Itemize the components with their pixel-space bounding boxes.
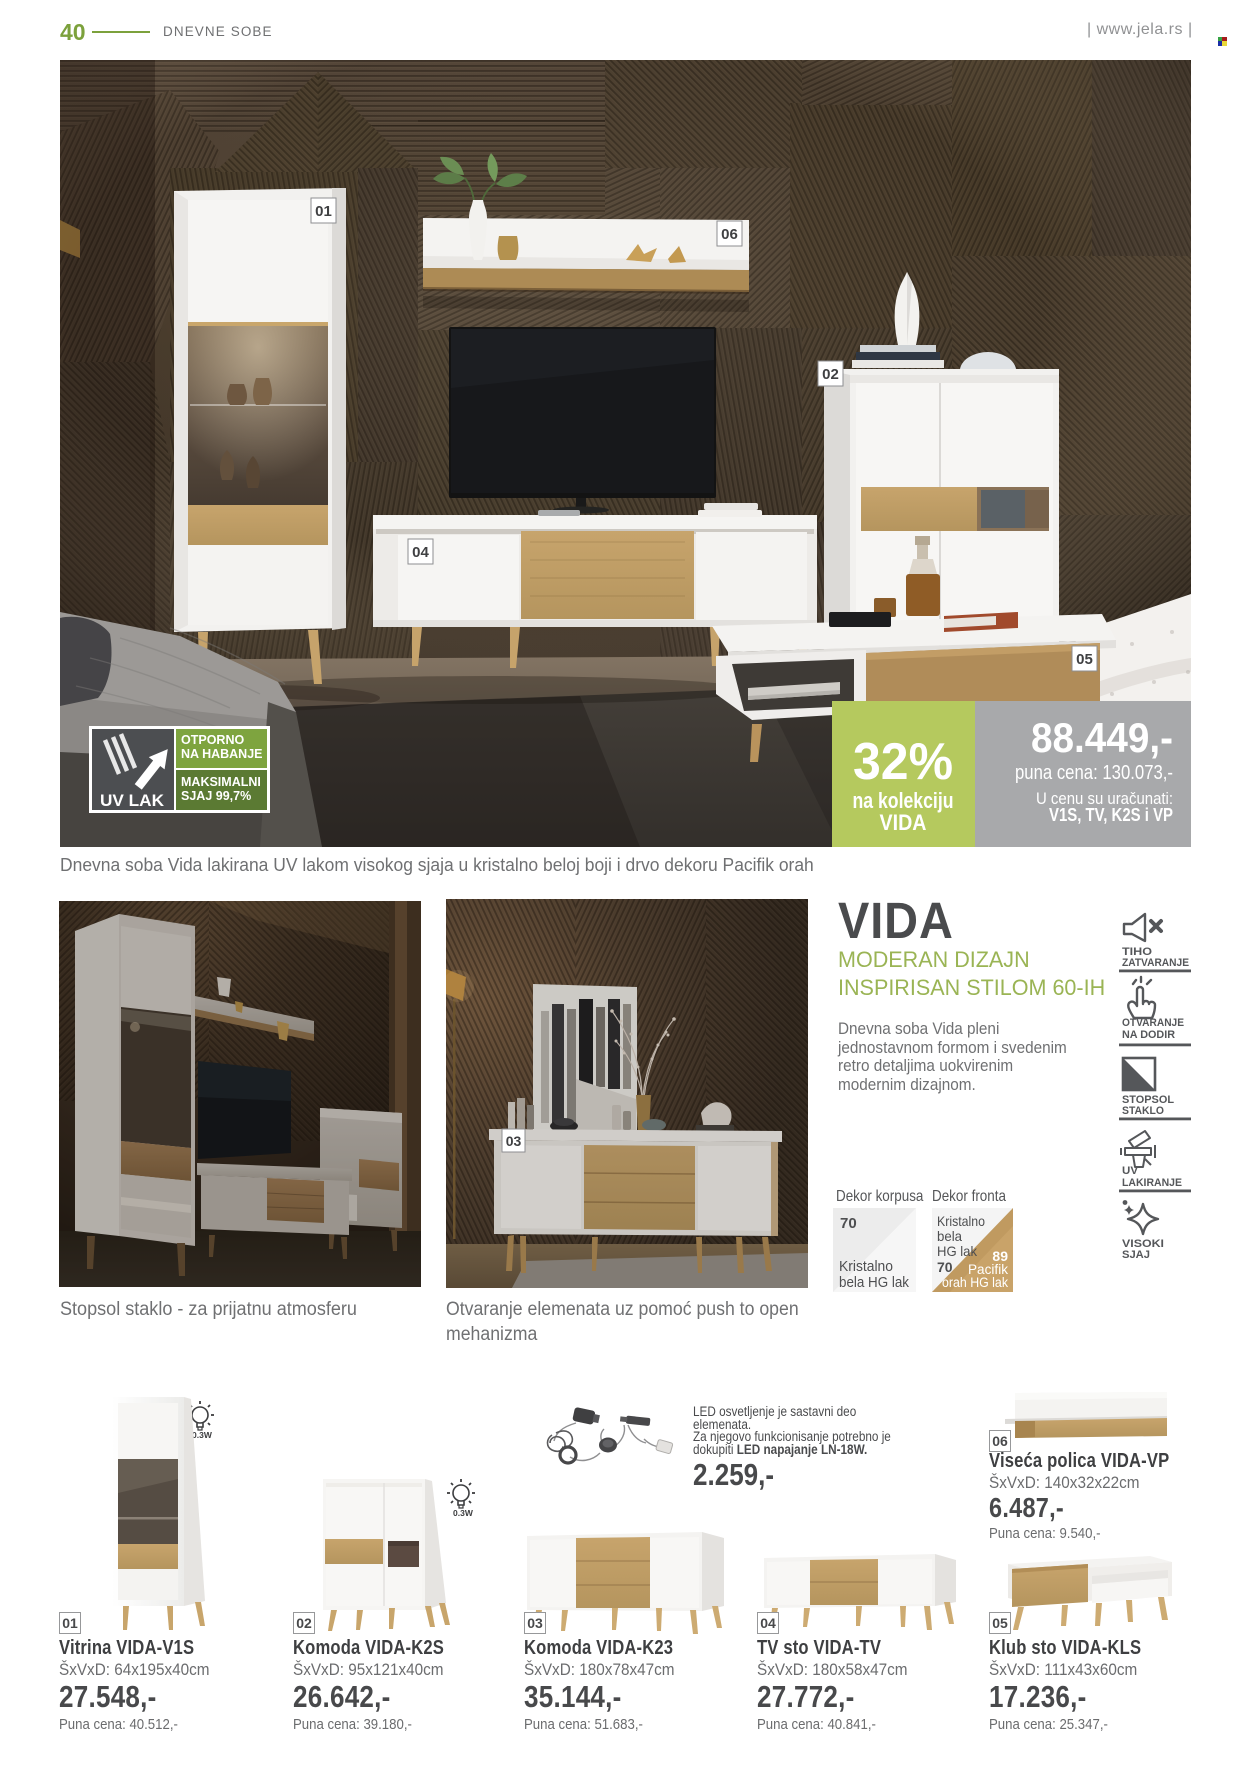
svg-text:UV: UV xyxy=(1122,1165,1139,1177)
svg-text:V1S, TV, K2S i VP: V1S, TV, K2S i VP xyxy=(1049,805,1173,825)
svg-text:88.449,-: 88.449,- xyxy=(1031,714,1173,761)
svg-text:orah HG lak: orah HG lak xyxy=(942,1275,1008,1290)
svg-text:STAKLO: STAKLO xyxy=(1122,1105,1164,1117)
svg-text:ZATVARANJE: ZATVARANJE xyxy=(1122,957,1189,969)
svg-text:02: 02 xyxy=(822,366,839,383)
svg-text:MAKSIMALNI: MAKSIMALNI xyxy=(181,775,261,789)
svg-text:0.3W: 0.3W xyxy=(453,1508,474,1518)
svg-text:SJAJ: SJAJ xyxy=(1122,1249,1150,1261)
svg-text:0.3W: 0.3W xyxy=(192,1430,213,1440)
svg-text:NA DODIR: NA DODIR xyxy=(1122,1029,1175,1041)
svg-text:SJAJ 99,7%: SJAJ 99,7% xyxy=(181,789,251,803)
svg-text:Kristalno: Kristalno xyxy=(839,1258,893,1275)
svg-text:05: 05 xyxy=(1076,651,1093,668)
svg-text:32%: 32% xyxy=(853,733,953,791)
svg-text:OTVARANJE: OTVARANJE xyxy=(1122,1017,1184,1029)
svg-text:06: 06 xyxy=(721,226,738,243)
svg-text:bela HG lak: bela HG lak xyxy=(839,1274,909,1291)
svg-text:04: 04 xyxy=(412,544,429,561)
svg-text:Kristalno: Kristalno xyxy=(937,1213,985,1229)
svg-text:puna cena: 130.073,-: puna cena: 130.073,- xyxy=(1015,762,1173,784)
svg-text:UV LAK: UV LAK xyxy=(100,791,165,810)
svg-text:bela: bela xyxy=(937,1228,962,1244)
svg-text:VIDA: VIDA xyxy=(880,810,927,835)
svg-text:70: 70 xyxy=(937,1259,953,1275)
svg-text:03: 03 xyxy=(506,1133,522,1149)
svg-text:01: 01 xyxy=(315,203,332,220)
svg-text:70: 70 xyxy=(840,1215,857,1232)
svg-text:OTPORNO: OTPORNO xyxy=(181,733,244,747)
svg-text:NA HABANJE: NA HABANJE xyxy=(181,747,263,761)
svg-text:LAKIRANJE: LAKIRANJE xyxy=(1122,1177,1182,1189)
svg-text:HG lak: HG lak xyxy=(937,1243,978,1259)
